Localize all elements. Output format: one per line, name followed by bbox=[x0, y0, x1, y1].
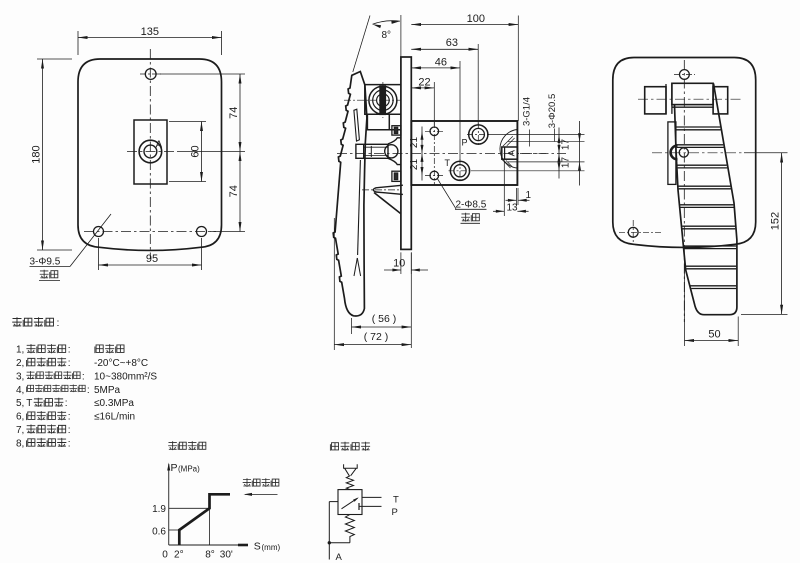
svg-text:21: 21 bbox=[409, 137, 420, 149]
svg-text::: : bbox=[57, 317, 60, 329]
svg-text:≤16L/min: ≤16L/min bbox=[94, 412, 135, 423]
svg-text:3-Φ9.5: 3-Φ9.5 bbox=[30, 257, 61, 268]
svg-text:135: 135 bbox=[141, 26, 159, 38]
svg-text:46: 46 bbox=[435, 56, 447, 68]
svg-text:30': 30' bbox=[220, 550, 233, 561]
svg-text:7,: 7, bbox=[16, 425, 24, 436]
svg-text::: : bbox=[68, 358, 71, 369]
svg-text:13: 13 bbox=[507, 202, 519, 213]
svg-text:8°: 8° bbox=[382, 30, 392, 41]
svg-text:95: 95 bbox=[146, 253, 158, 265]
svg-text:63: 63 bbox=[446, 37, 458, 49]
svg-text:50: 50 bbox=[708, 329, 720, 341]
svg-text:60: 60 bbox=[190, 145, 202, 157]
svg-text::: : bbox=[68, 425, 71, 436]
svg-text:6,: 6, bbox=[16, 412, 24, 423]
svg-text:17: 17 bbox=[561, 139, 572, 151]
svg-text:8,: 8, bbox=[16, 438, 24, 449]
svg-text:P: P bbox=[462, 138, 468, 148]
svg-text:(mm): (mm) bbox=[262, 543, 281, 552]
svg-text:T: T bbox=[445, 158, 451, 168]
svg-text:21: 21 bbox=[409, 159, 420, 171]
svg-text:3,: 3, bbox=[16, 371, 24, 382]
svg-text:≤0.3MPa: ≤0.3MPa bbox=[94, 398, 134, 409]
svg-text:T: T bbox=[26, 398, 32, 409]
svg-text::: : bbox=[82, 371, 85, 382]
svg-text::: : bbox=[65, 398, 68, 409]
svg-text:( 72 ): ( 72 ) bbox=[364, 331, 389, 343]
svg-text:0: 0 bbox=[162, 550, 168, 561]
svg-text:T: T bbox=[393, 495, 399, 506]
svg-text:1,: 1, bbox=[16, 345, 24, 356]
svg-text::: : bbox=[68, 345, 71, 356]
svg-text:1: 1 bbox=[526, 190, 532, 201]
svg-text:10: 10 bbox=[393, 258, 405, 270]
svg-text:P: P bbox=[392, 507, 398, 518]
svg-text:0.6: 0.6 bbox=[152, 527, 166, 538]
svg-text:3-Φ20.5: 3-Φ20.5 bbox=[547, 94, 558, 129]
svg-text:-20°C~+8°C: -20°C~+8°C bbox=[94, 358, 148, 369]
svg-text::: : bbox=[68, 412, 71, 423]
svg-text:180: 180 bbox=[31, 145, 43, 163]
svg-text:17: 17 bbox=[561, 157, 572, 169]
svg-text:A: A bbox=[156, 140, 163, 151]
svg-text:P: P bbox=[171, 462, 178, 474]
svg-text:A: A bbox=[507, 149, 518, 156]
svg-text:2,: 2, bbox=[16, 358, 24, 369]
svg-text:5,: 5, bbox=[16, 398, 24, 409]
svg-text:(MPa): (MPa) bbox=[178, 465, 200, 474]
svg-text::: : bbox=[87, 385, 90, 396]
svg-text:8°: 8° bbox=[205, 550, 215, 561]
svg-text:100: 100 bbox=[467, 13, 485, 25]
svg-text::: : bbox=[68, 438, 71, 449]
svg-text:S: S bbox=[254, 541, 261, 553]
svg-text:( 56 ): ( 56 ) bbox=[372, 313, 397, 325]
svg-text:5MPa: 5MPa bbox=[94, 385, 121, 396]
svg-text:2-Φ8.5: 2-Φ8.5 bbox=[456, 200, 487, 211]
svg-text:A: A bbox=[336, 552, 343, 563]
svg-text:152: 152 bbox=[769, 212, 781, 230]
svg-text:1.9: 1.9 bbox=[152, 504, 166, 515]
svg-text:10~380mm²/S: 10~380mm²/S bbox=[94, 371, 157, 382]
svg-text:74: 74 bbox=[228, 107, 240, 119]
svg-text:74: 74 bbox=[228, 185, 240, 197]
svg-text:2°: 2° bbox=[174, 550, 184, 561]
svg-text:3-G1/4: 3-G1/4 bbox=[522, 97, 533, 126]
svg-text:4,: 4, bbox=[16, 385, 24, 396]
svg-text:22: 22 bbox=[418, 76, 430, 88]
